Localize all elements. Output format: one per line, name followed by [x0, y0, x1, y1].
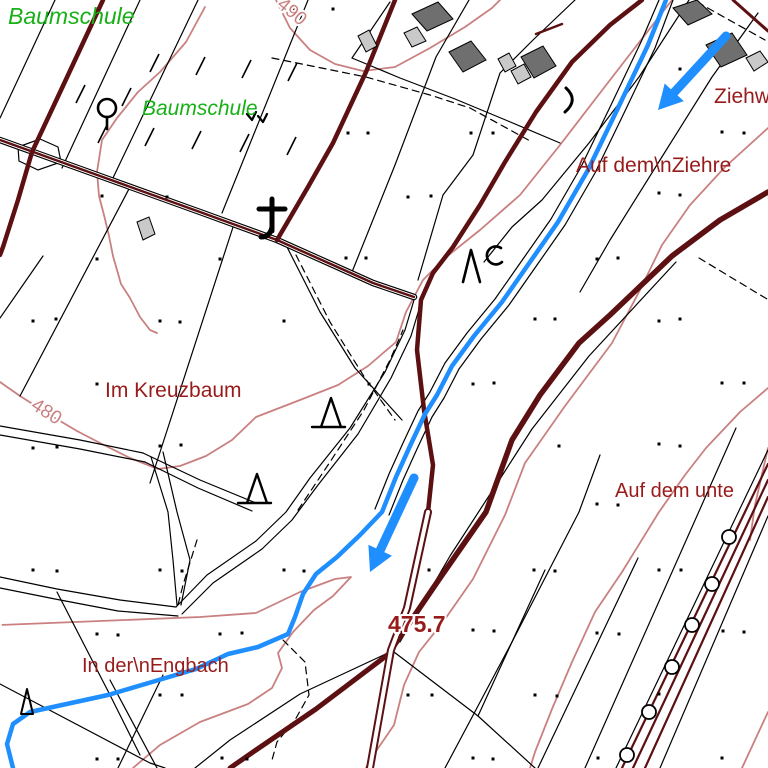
boundary-dot: [533, 569, 536, 572]
boundary-dot: [117, 634, 120, 637]
boundary-dot: [596, 632, 599, 635]
boundary-dot: [96, 258, 99, 261]
boundary-dot: [492, 132, 495, 135]
boundary-dot: [181, 570, 184, 573]
boundary-dot: [554, 318, 557, 321]
boundary-dot: [556, 695, 559, 698]
boundary-dot: [658, 693, 661, 696]
map-label-spot-height: 475.7: [388, 611, 446, 637]
boundary-dot: [241, 632, 244, 635]
boundary-dot: [658, 320, 661, 323]
boundary-dot: [101, 195, 104, 198]
boundary-dot: [679, 318, 682, 321]
boundary-dot: [55, 318, 58, 321]
boundary-dot: [96, 633, 99, 636]
boundary-dot: [368, 383, 371, 386]
boundary-dot: [679, 68, 682, 71]
boundary-dot: [219, 633, 222, 636]
boundary-dot: [493, 382, 496, 385]
boundary-dot: [159, 694, 162, 697]
avenue-tree-icon: [665, 660, 679, 674]
boundary-dot: [117, 758, 120, 761]
boundary-dot: [722, 630, 725, 633]
map-canvas[interactable]: BaumschuleBaumschuleZiehwAuf dem\nZiehre…: [0, 0, 768, 768]
boundary-dot: [159, 445, 162, 448]
boundary-dot: [221, 757, 224, 760]
boundary-dot: [159, 320, 162, 323]
boundary-dot: [96, 383, 99, 386]
boundary-dot: [558, 445, 561, 448]
map-label-im-kreuzbaum: Im Kreuzbaum: [105, 379, 242, 402]
boundary-dot: [596, 258, 599, 261]
boundary-dot: [32, 569, 35, 572]
boundary-dot: [743, 631, 746, 634]
boundary-dot: [96, 758, 99, 761]
boundary-dot: [721, 382, 724, 385]
boundary-dot: [597, 757, 600, 760]
avenue-tree-icon: [642, 705, 656, 719]
boundary-dot: [181, 694, 184, 697]
boundary-dot: [407, 694, 410, 697]
topographic-map: BaumschuleBaumschuleZiehwAuf dem\nZiehre…: [0, 0, 768, 768]
boundary-dot: [680, 569, 683, 572]
map-label-baumschule-1: Baumschule: [8, 3, 135, 29]
boundary-dot: [365, 257, 368, 260]
boundary-dot: [658, 569, 661, 572]
boundary-dot: [617, 504, 620, 507]
avenue-tree-icon: [685, 618, 699, 632]
boundary-dot: [596, 503, 599, 506]
boundary-dot: [283, 320, 286, 323]
boundary-dot: [534, 694, 537, 697]
boundary-dot: [431, 694, 434, 697]
boundary-dot: [32, 320, 35, 323]
boundary-dot: [56, 446, 59, 449]
boundary-dot: [347, 132, 350, 135]
boundary-dot: [428, 569, 431, 572]
map-label-ziehw: Ziehw: [714, 85, 768, 108]
boundary-dot: [470, 132, 473, 135]
boundary-dot: [658, 192, 661, 195]
boundary-dot: [246, 758, 249, 761]
boundary-dot: [679, 445, 682, 448]
boundary-dot: [617, 257, 620, 260]
boundary-dot: [32, 447, 35, 450]
boundary-dot: [554, 570, 557, 573]
boundary-dot: [534, 318, 537, 321]
boundary-dot: [159, 569, 162, 572]
boundary-dot: [179, 321, 182, 324]
boundary-dot: [430, 195, 433, 198]
boundary-dot: [721, 131, 724, 134]
boundary-dot: [367, 132, 370, 135]
boundary-dot: [679, 194, 682, 197]
boundary-dot: [743, 132, 746, 135]
boundary-dot: [472, 629, 475, 632]
avenue-tree-icon: [722, 530, 736, 544]
boundary-dot: [332, 8, 335, 11]
map-label-in-der-engbach: In der\nEngbach: [82, 655, 229, 677]
avenue-tree-icon: [620, 748, 634, 762]
boundary-dot: [493, 630, 496, 633]
boundary-dot: [345, 257, 348, 260]
boundary-dot: [472, 383, 475, 386]
boundary-dot: [166, 196, 169, 199]
boundary-dot: [472, 757, 475, 760]
map-label-auf-dem-unte: Auf dem unte: [615, 480, 734, 502]
boundary-dot: [180, 444, 183, 447]
boundary-dot: [492, 758, 495, 761]
boundary-dot: [618, 633, 621, 636]
avenue-tree-icon: [705, 577, 719, 591]
map-label-baumschule-2: Baumschule: [142, 97, 258, 120]
boundary-dot: [283, 569, 286, 572]
map-label-auf-dem-ziehre: Auf dem\nZiehre: [576, 154, 731, 177]
boundary-dot: [743, 382, 746, 385]
boundary-dot: [56, 570, 59, 573]
boundary-dot: [219, 258, 222, 261]
boundary-dot: [658, 443, 661, 446]
boundary-dot: [303, 570, 306, 573]
boundary-dot: [407, 196, 410, 199]
boundary-dot: [721, 757, 724, 760]
